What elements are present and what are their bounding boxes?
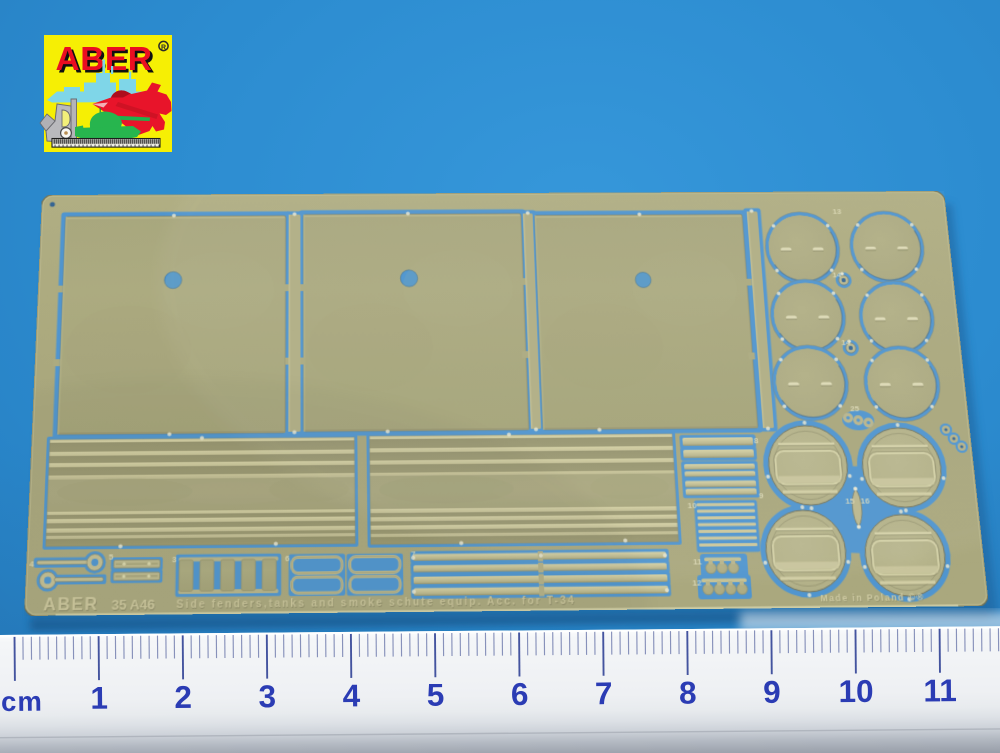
svg-text:R: R <box>161 44 166 51</box>
